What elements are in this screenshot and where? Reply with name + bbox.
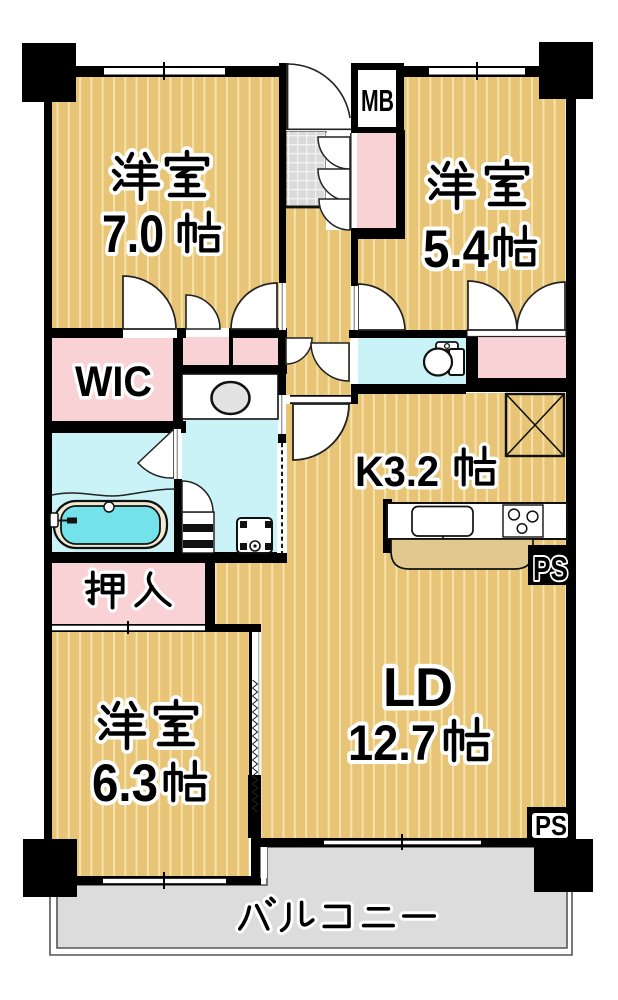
svg-text:5.4: 5.4 [423,220,489,279]
svg-text:LD: LD [383,656,453,718]
svg-text:PS: PS [535,810,567,841]
svg-text:12.7: 12.7 [348,715,436,771]
svg-text:MB: MB [361,83,394,118]
svg-text:WIC: WIC [75,358,152,406]
svg-text:PS: PS [533,550,568,587]
svg-text:6.3: 6.3 [92,754,158,813]
svg-text:K3.2: K3.2 [355,448,439,496]
svg-text:7.0: 7.0 [102,205,164,264]
